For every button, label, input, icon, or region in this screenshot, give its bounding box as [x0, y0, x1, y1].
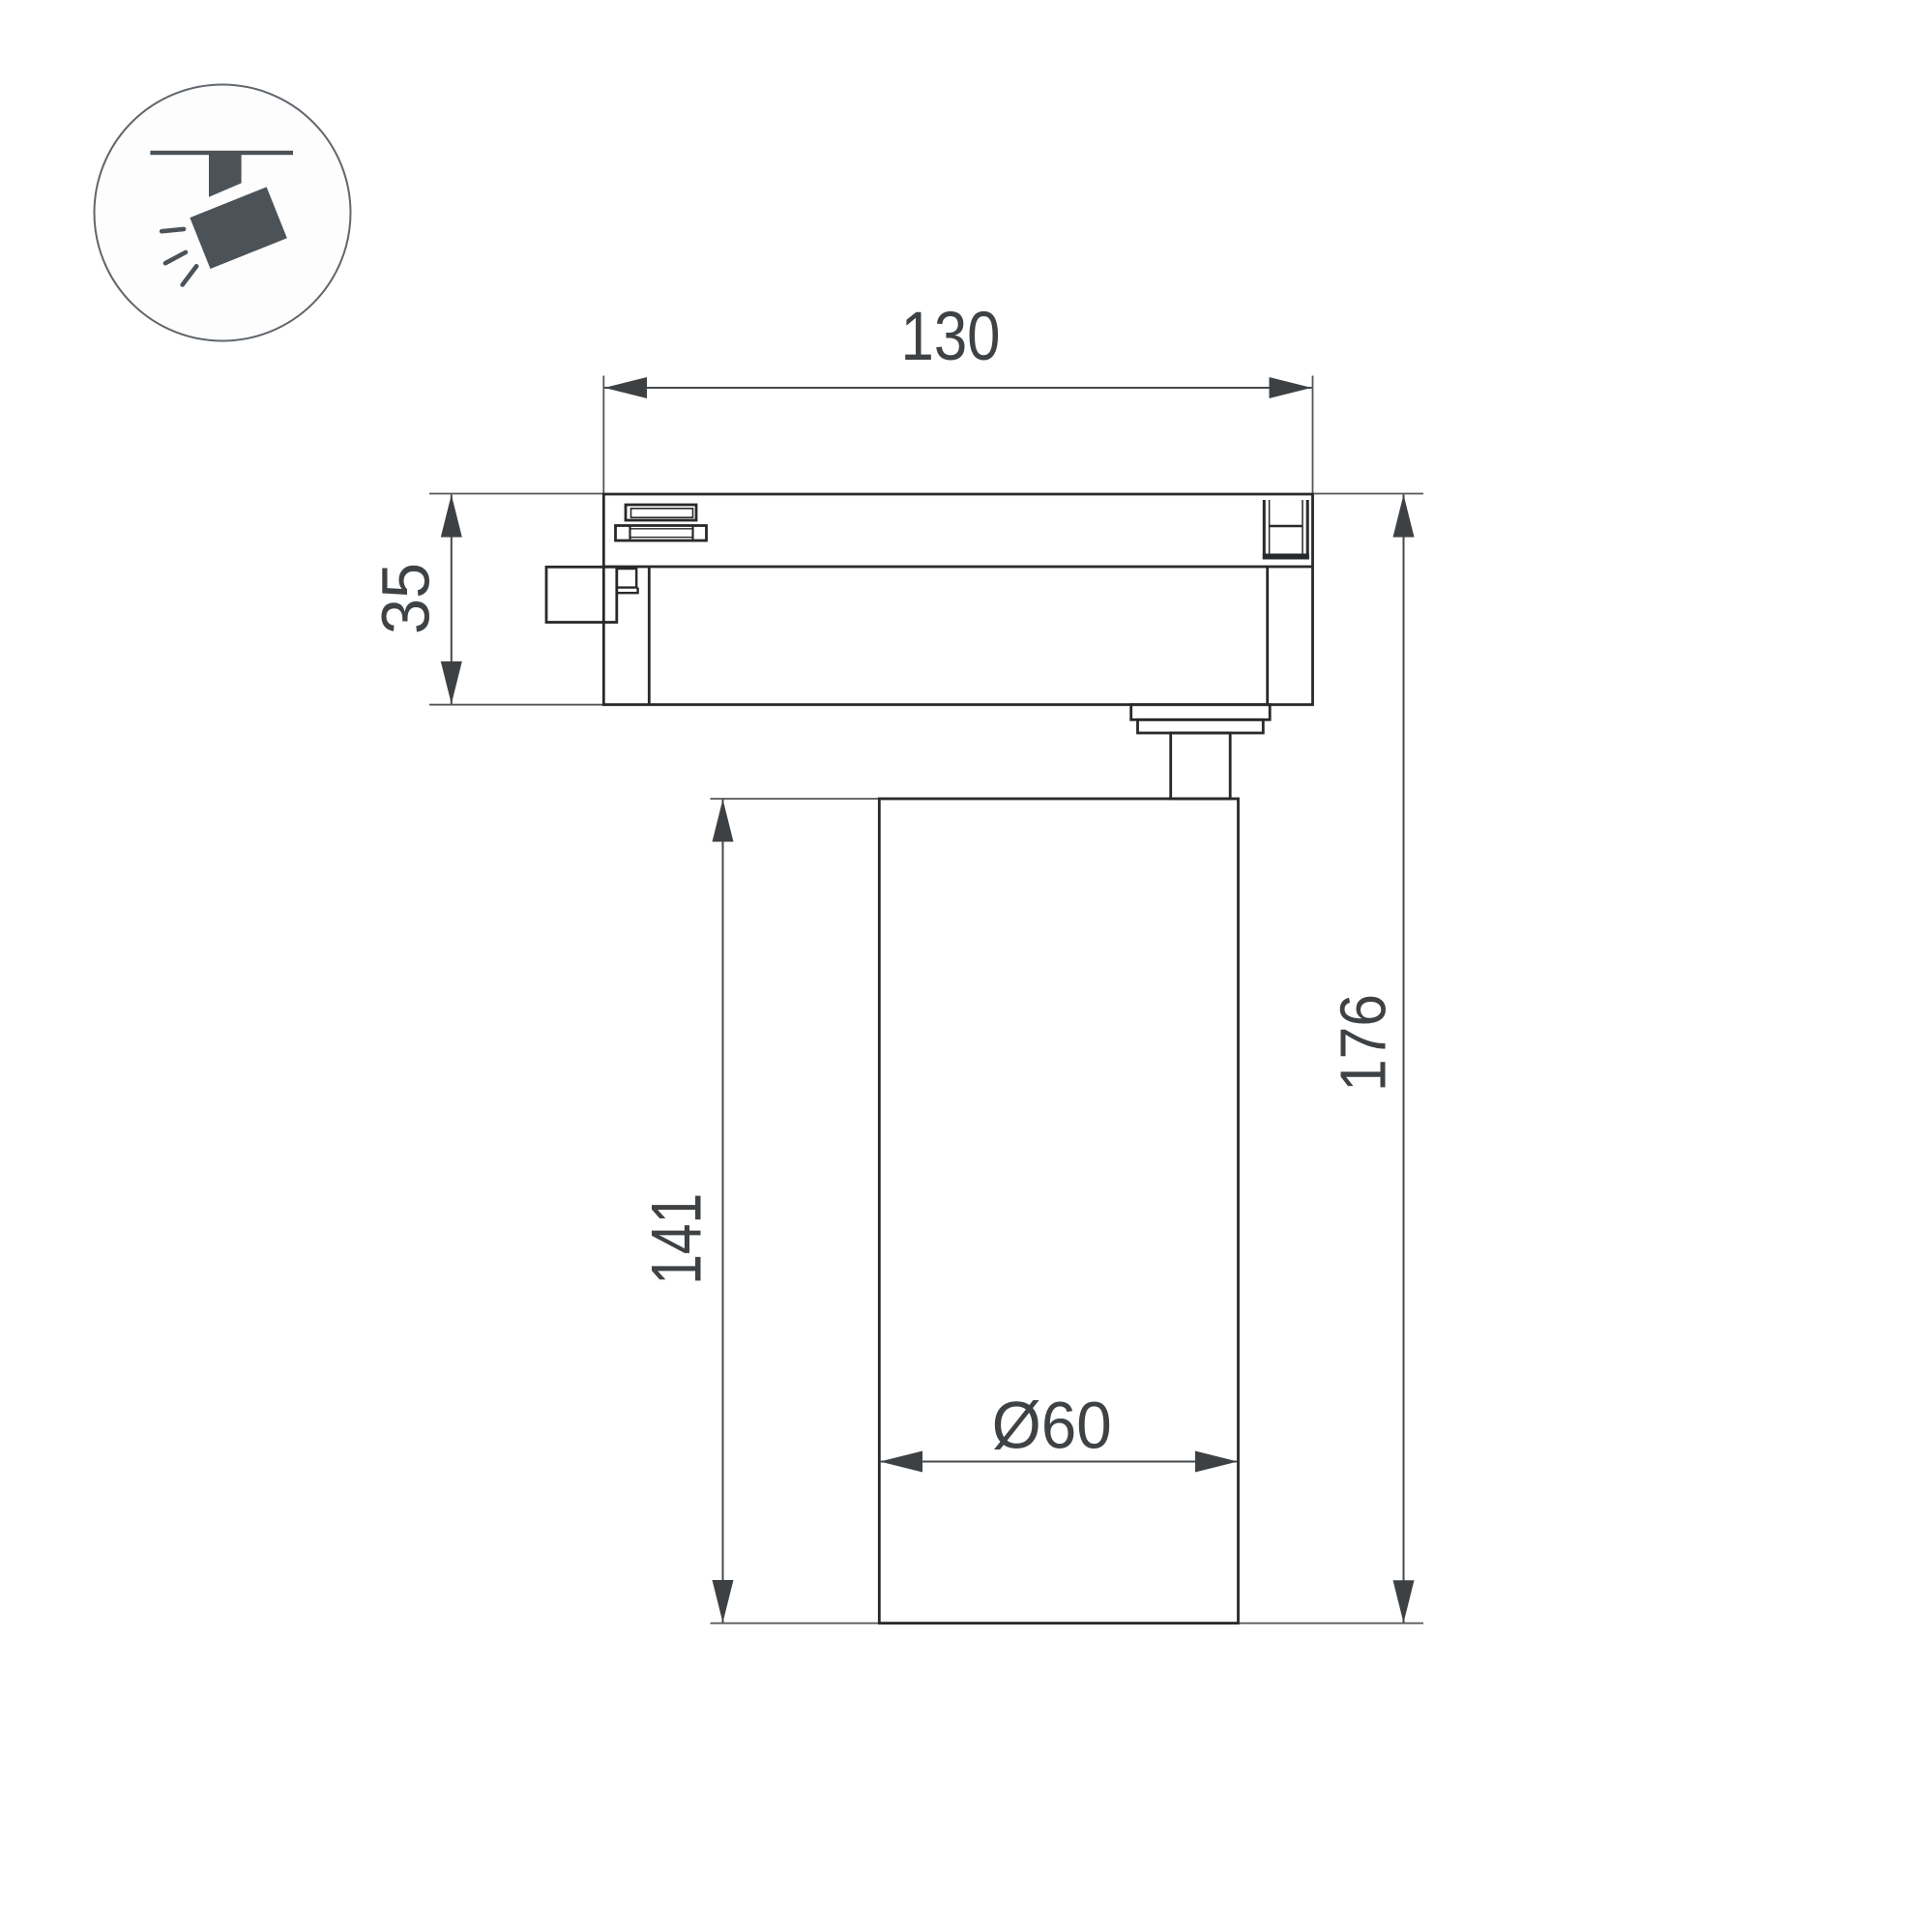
svg-text:35: 35 — [368, 563, 444, 634]
svg-text:Ø60: Ø60 — [992, 1389, 1112, 1463]
svg-text:130: 130 — [901, 299, 1001, 375]
svg-text:141: 141 — [638, 1193, 717, 1285]
svg-text:176: 176 — [1328, 994, 1400, 1092]
